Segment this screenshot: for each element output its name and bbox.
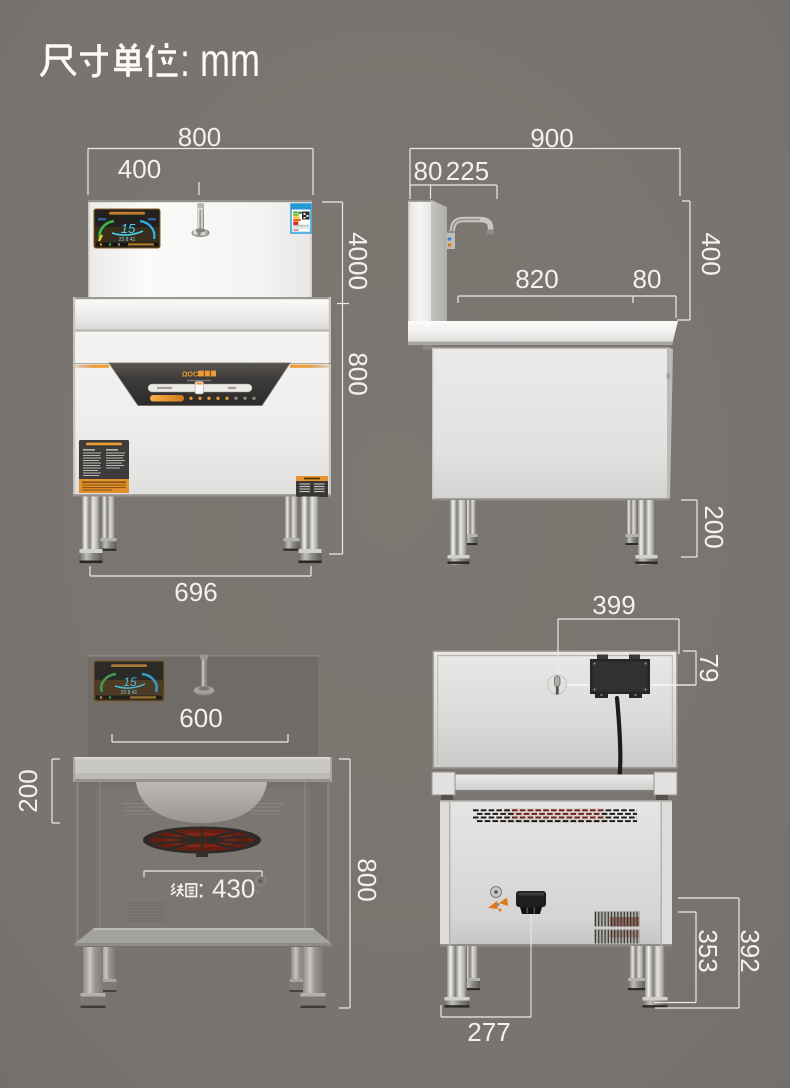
svg-text:400: 400 [696,232,726,275]
svg-text:900: 900 [530,123,573,153]
svg-text:820: 820 [515,264,558,294]
svg-text:79: 79 [694,654,724,683]
svg-text:353: 353 [693,929,723,972]
svg-text:23 8 41: 23 8 41 [119,237,136,243]
svg-text:400: 400 [118,154,161,184]
svg-text:600: 600 [179,703,222,733]
svg-text:4000: 4000 [343,232,373,290]
svg-text:23 8 41: 23 8 41 [121,690,138,696]
svg-text:200: 200 [699,505,729,548]
svg-text:392: 392 [735,929,765,972]
svg-text:800: 800 [343,352,373,395]
svg-text:277: 277 [467,1017,510,1047]
svg-text:800: 800 [352,858,382,901]
svg-text:: mm: : mm [180,34,260,86]
svg-text:225: 225 [446,156,489,186]
svg-text:399: 399 [592,590,635,620]
svg-text:: 430: : 430 [198,874,256,904]
svg-text:ΩOC: ΩOC [182,372,198,379]
svg-text:80: 80 [414,156,443,186]
svg-text:800: 800 [178,122,221,152]
svg-text:696: 696 [174,577,217,607]
svg-text:80: 80 [633,264,662,294]
svg-text:200: 200 [13,769,43,812]
